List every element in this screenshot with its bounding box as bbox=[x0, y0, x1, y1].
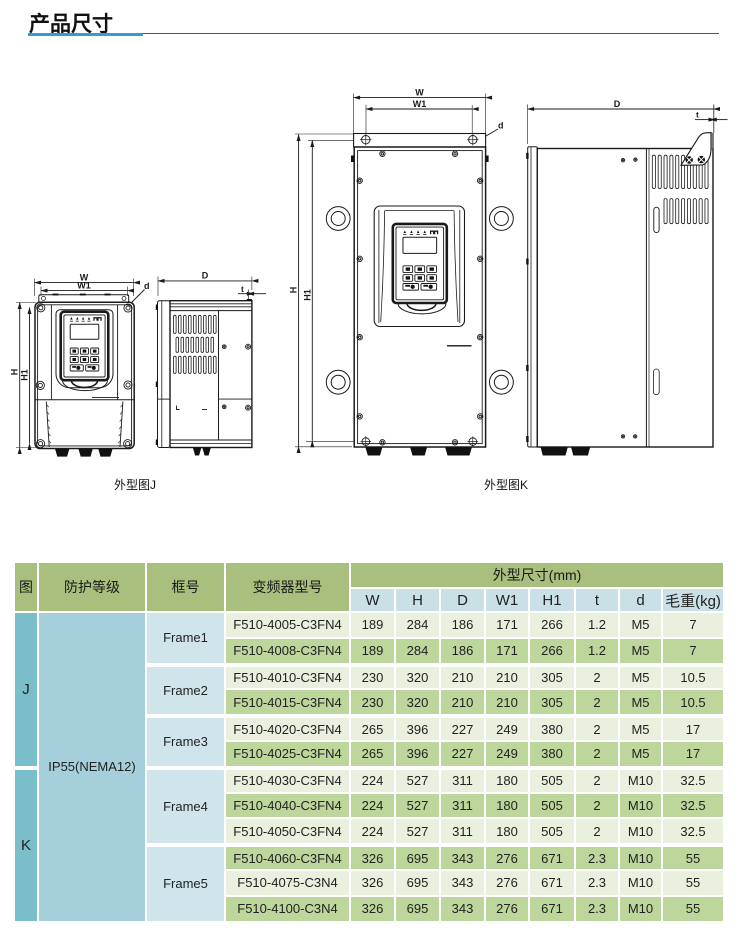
svg-text:t: t bbox=[241, 284, 244, 294]
svg-text:H1: H1 bbox=[302, 289, 312, 301]
svg-text:H: H bbox=[10, 369, 20, 376]
svg-text:d: d bbox=[498, 121, 504, 131]
svg-text:W1: W1 bbox=[77, 281, 91, 291]
svg-text:W: W bbox=[415, 87, 424, 97]
svg-text:H: H bbox=[289, 287, 299, 294]
svg-text:t: t bbox=[696, 110, 699, 120]
svg-text:D: D bbox=[202, 271, 209, 281]
svg-text:d: d bbox=[144, 281, 150, 291]
svg-text:D: D bbox=[614, 99, 621, 109]
svg-text:W1: W1 bbox=[413, 99, 427, 109]
svg-text:H1: H1 bbox=[20, 369, 30, 381]
